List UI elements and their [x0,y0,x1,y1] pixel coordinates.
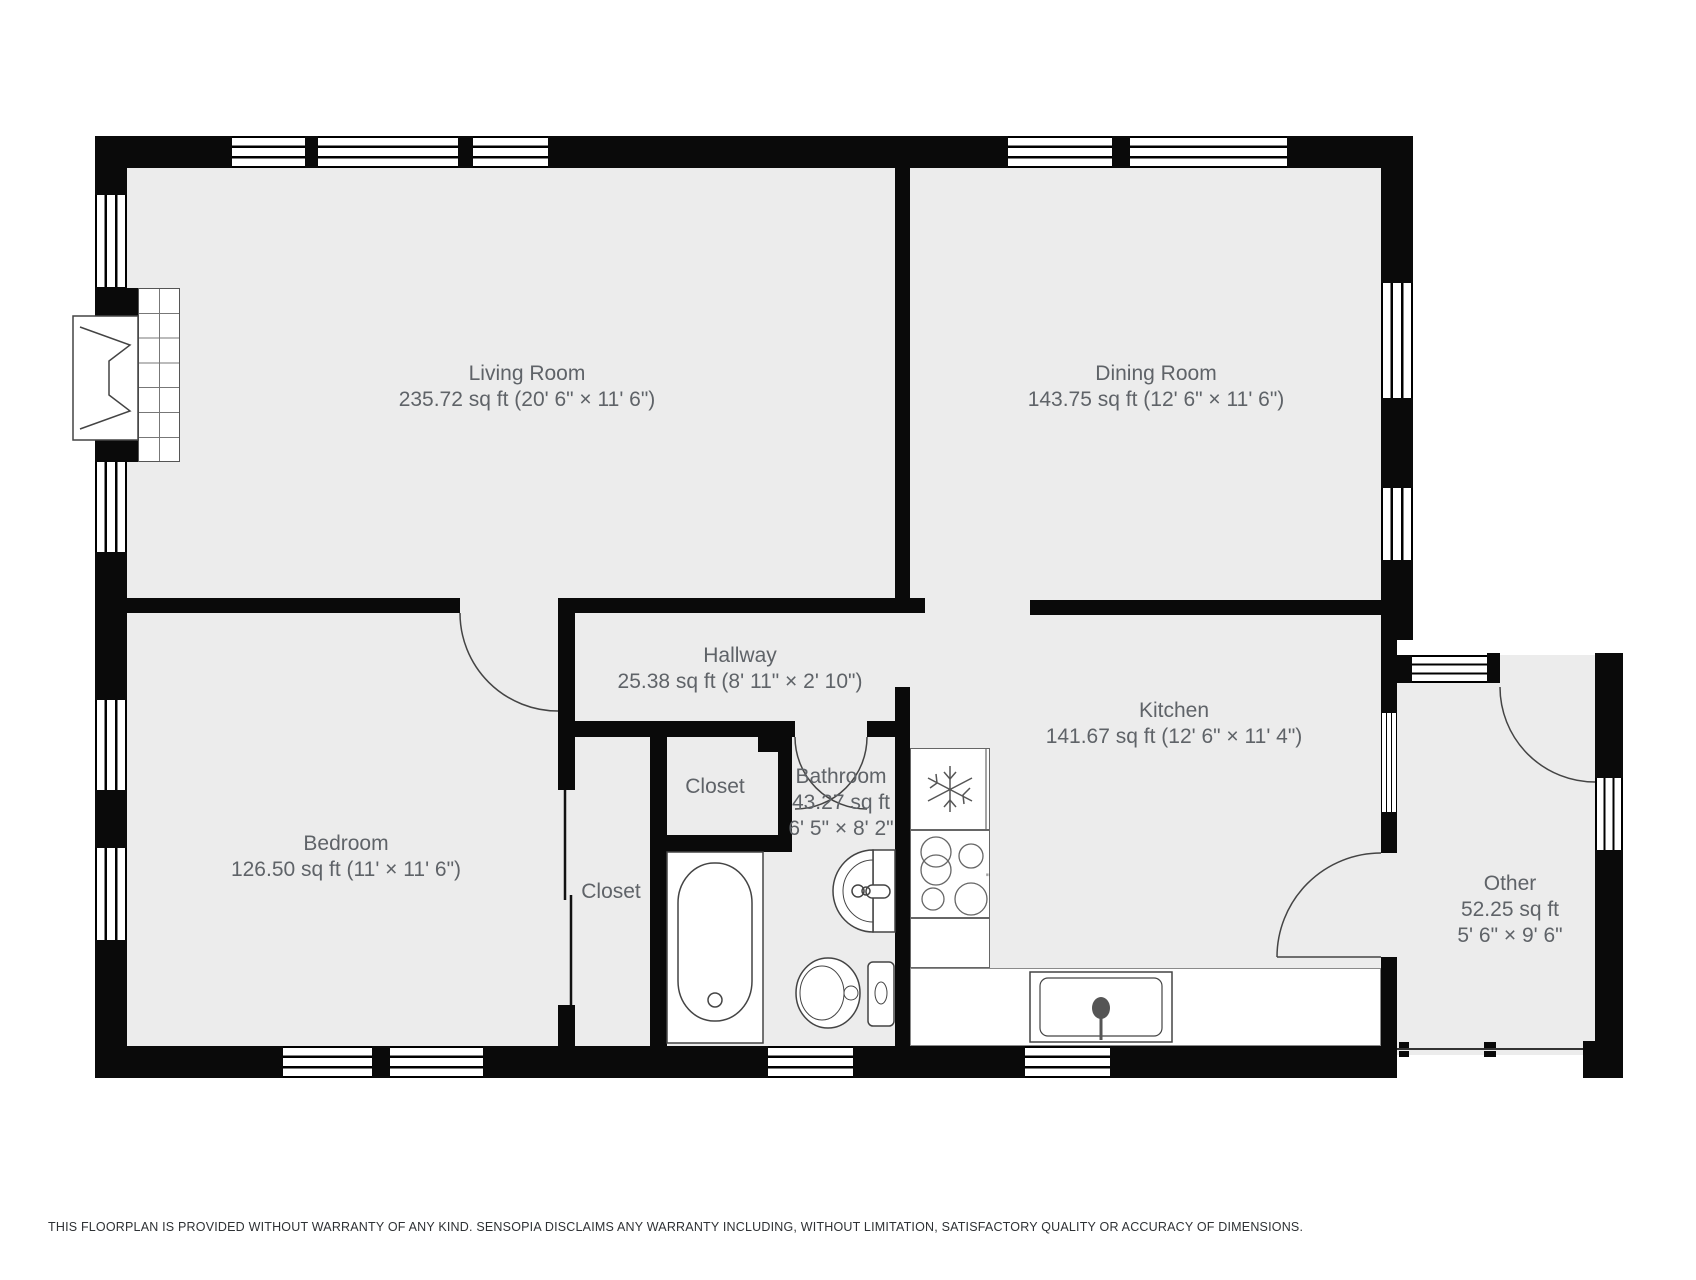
toilet [796,958,894,1028]
fixtures-layer: " [0,0,1696,1280]
room-dims: 5' 6" × 9' 6" [1457,923,1562,949]
room-size: 126.50 sq ft (11' × 11' 6") [231,857,461,883]
room-area: 52.25 sq ft [1457,897,1562,923]
bathtub [667,852,763,1043]
room-name: Living Room [399,361,656,387]
room-name: Bathroom [788,764,893,790]
room-name: Dining Room [1028,361,1285,387]
room-area: 43.27 sq ft [788,790,893,816]
stove-burners: " [921,837,990,915]
bathroom-sink [833,850,895,932]
other-room-sliding-door [1397,1042,1583,1057]
bedroom-closet-label: Closet [581,879,641,905]
bedroom-label: Bedroom 126.50 sq ft (11' × 11' 6") [231,831,461,883]
room-name: Kitchen [1046,698,1303,724]
room-size: 141.67 sq ft (12' 6" × 11' 4") [1046,724,1303,750]
room-name: Closet [581,879,641,905]
room-size: 25.38 sq ft (8' 11" × 2' 10") [618,669,863,695]
room-name: Bedroom [231,831,461,857]
living-room-label: Living Room 235.72 sq ft (20' 6" × 11' 6… [399,361,656,413]
svg-text:": " [986,871,990,885]
room-name: Other [1457,871,1562,897]
room-size: 143.75 sq ft (12' 6" × 11' 6") [1028,387,1285,413]
closet-sliding-doors [565,790,571,1005]
room-name: Hallway [618,643,863,669]
other-room-door-arc [1500,687,1595,782]
other-room-label: Other 52.25 sq ft 5' 6" × 9' 6" [1457,871,1562,949]
room-name: Closet [685,774,745,800]
hallway-label: Hallway 25.38 sq ft (8' 11" × 2' 10") [618,643,863,695]
room-dims: 6' 5" × 8' 2" [788,816,893,842]
room-size: 235.72 sq ft (20' 6" × 11' 6") [399,387,656,413]
kitchen-door-arc [1277,853,1381,957]
kitchen-sink [1030,972,1172,1042]
kitchen-label: Kitchen 141.67 sq ft (12' 6" × 11' 4") [1046,698,1303,750]
floor-plan: " [0,0,1696,1280]
fireplace-firebox [73,316,138,440]
snowflake-icon [928,766,972,812]
dining-room-label: Dining Room 143.75 sq ft (12' 6" × 11' 6… [1028,361,1285,413]
hall-closet-label: Closet [685,774,745,800]
bedroom-door-arc [460,613,558,711]
bathroom-label: Bathroom 43.27 sq ft 6' 5" × 8' 2" [788,764,893,842]
